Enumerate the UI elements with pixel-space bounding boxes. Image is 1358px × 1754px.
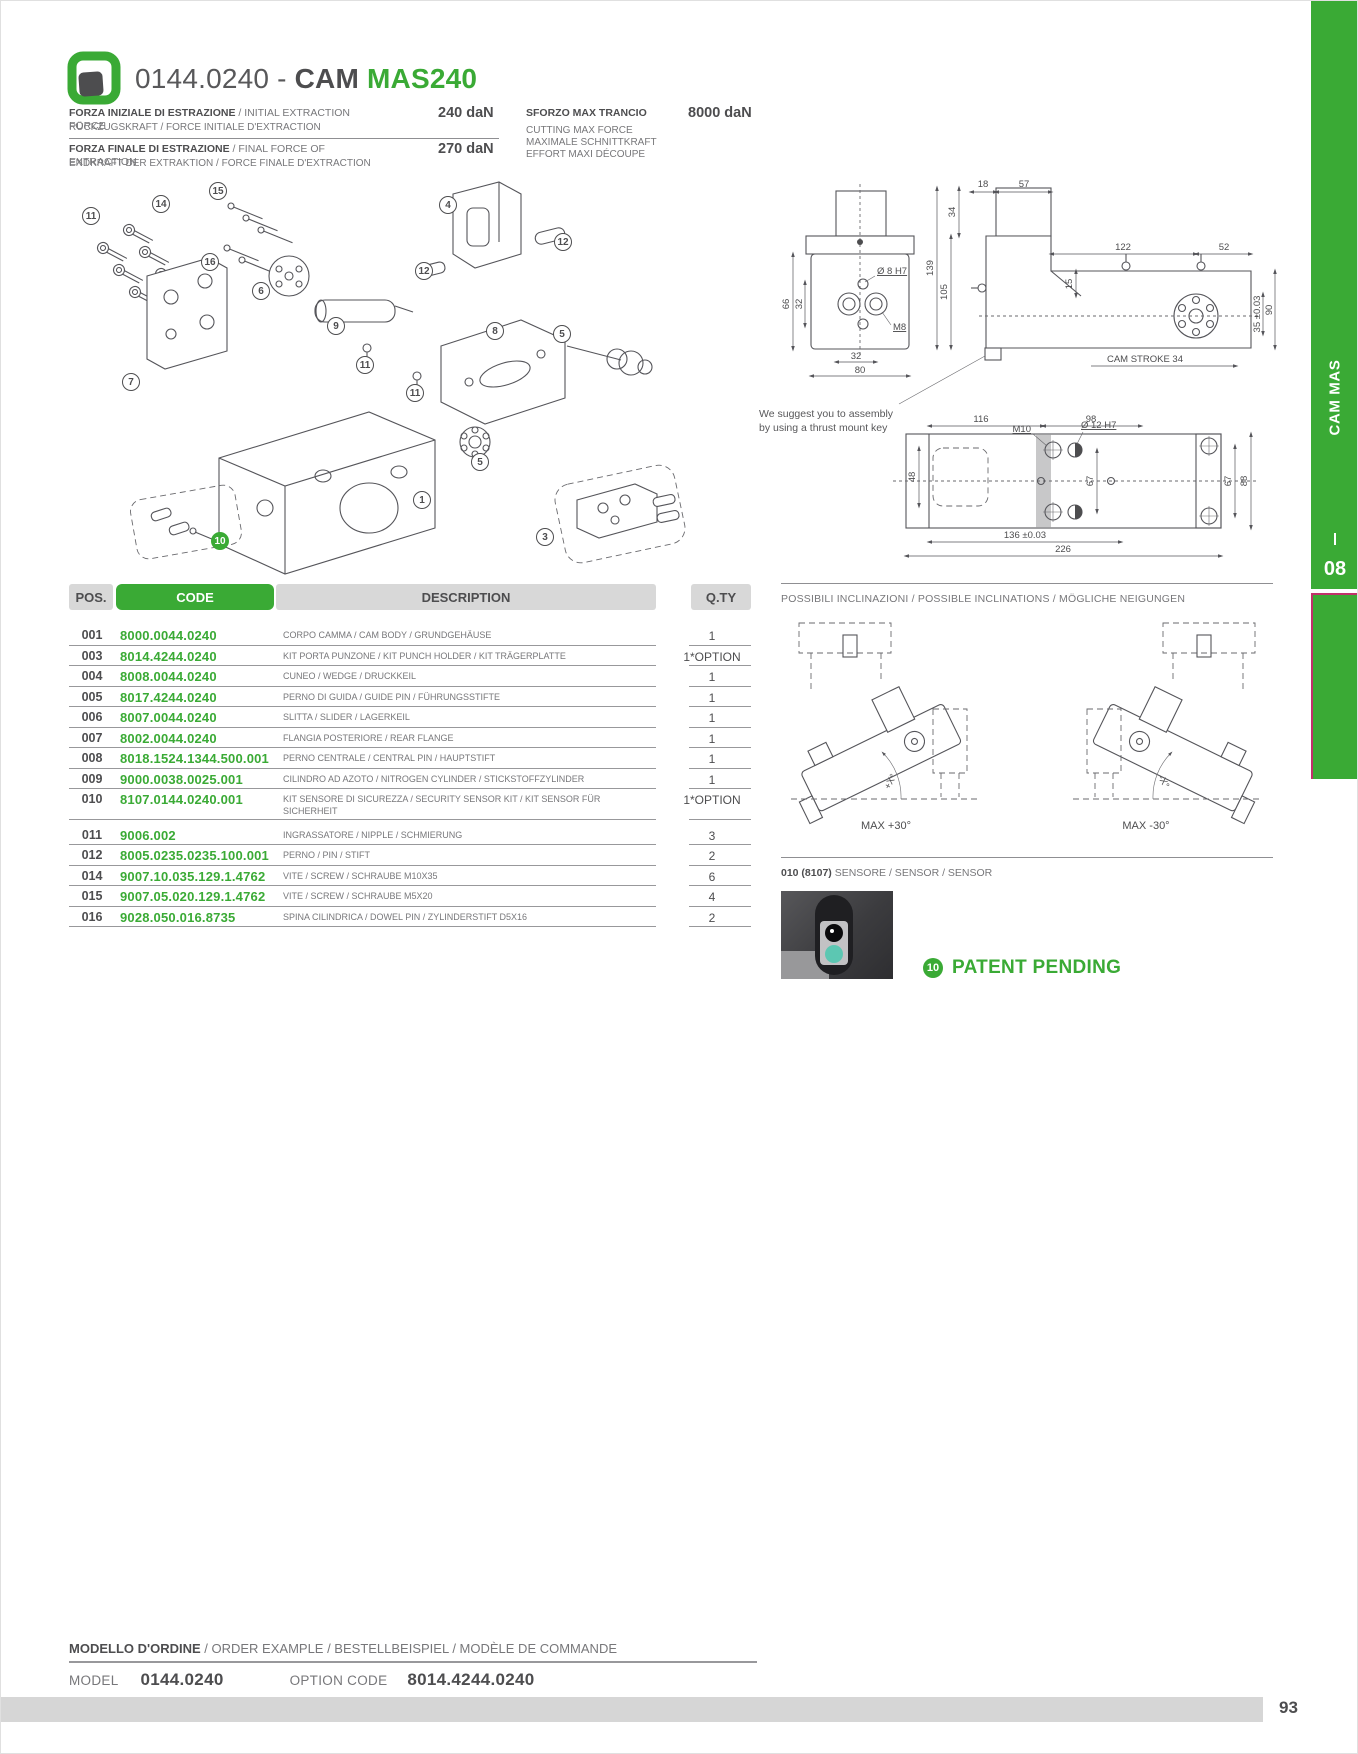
balloon-1: 1 (413, 491, 431, 509)
cell-code: 9007.10.035.129.1.4762 (115, 869, 283, 884)
spec-max-cut-value: 8000 daN (688, 105, 752, 121)
parts-table-body: 001 8000.0044.0240 CORPO CAMMA / CAM BOD… (69, 625, 751, 927)
cell-description: PERNO CENTRALE / CENTRAL PIN / HAUPTSTIF… (283, 751, 673, 766)
balloon-16: 16 (201, 253, 219, 271)
spec-max-cut-fr: EFFORT MAXI DÉCOUPE (526, 149, 645, 160)
exploded-balloons: 111415166412129851111751310 (69, 176, 691, 576)
svg-text:226: 226 (1055, 544, 1071, 555)
cell-pos: 004 (69, 669, 115, 684)
header-description: DESCRIPTION (276, 584, 656, 610)
cell-pos: 015 (69, 889, 115, 904)
cell-qty: 1 (673, 669, 751, 684)
cell-code: 8000.0044.0240 (115, 628, 283, 643)
svg-text:105: 105 (939, 284, 950, 300)
chapter-tab-label: CAM MAS (1327, 359, 1344, 435)
balloon-4: 4 (439, 196, 457, 214)
order-example-title: MODELLO D'ORDINE / ORDER EXAMPLE / BESTE… (69, 1641, 617, 1656)
cell-code: 8008.0044.0240 (115, 669, 283, 684)
cell-qty: 1 (673, 690, 751, 705)
balloon-7: 7 (122, 373, 140, 391)
cell-code: 9000.0038.0025.001 (115, 772, 283, 787)
table-row: 012 8005.0235.0235.100.001 PERNO / PIN /… (69, 845, 751, 866)
cell-description: KIT PORTA PUNZONE / KIT PUNCH HOLDER / K… (283, 649, 673, 664)
balloon-11: 11 (356, 356, 374, 374)
cell-pos: 011 (69, 828, 115, 843)
svg-text:32: 32 (794, 299, 805, 310)
balloon-15: 15 (209, 182, 227, 200)
cell-description: SLITTA / SLIDER / LAGERKEIL (283, 710, 673, 725)
model-label: MODEL (69, 1673, 119, 1688)
tab-separator (1334, 533, 1336, 545)
photo-sensor-lens (825, 924, 843, 942)
cell-pos: 008 (69, 751, 115, 766)
svg-text:80: 80 (855, 365, 866, 376)
cell-qty: 6 (673, 869, 751, 884)
cell-pos: 016 (69, 910, 115, 925)
order-example-line: MODEL 0144.0240 OPTION CODE 8014.4244.02… (69, 1670, 535, 1690)
chapter-tab: CAM MAS 08 (1311, 1, 1358, 589)
divider (781, 583, 1273, 584)
cell-pos: 010 (69, 792, 115, 817)
cell-code: 8017.4244.0240 (115, 690, 283, 705)
cell-pos: 006 (69, 710, 115, 725)
cell-description: SPINA CILINDRICA / DOWEL PIN / ZYLINDERS… (283, 910, 673, 925)
footer-bar (1, 1697, 1263, 1722)
cell-description: PERNO DI GUIDA / GUIDE PIN / FÜHRUNGSSTI… (283, 690, 673, 705)
svg-text:66: 66 (781, 299, 792, 310)
parts-table: POS. CODE DESCRIPTION Q.TY 001 8000.0044… (69, 584, 751, 927)
svg-text:M10: M10 (1013, 424, 1031, 435)
svg-text:136 ±0.03: 136 ±0.03 (1004, 530, 1046, 541)
header-qty: Q.TY (691, 584, 751, 610)
svg-text:88: 88 (1239, 476, 1250, 487)
header-pos: POS. (69, 584, 113, 610)
svg-text:67: 67 (1223, 476, 1234, 487)
patent-pending: 10 PATENT PENDING (923, 957, 1121, 979)
cell-description: FLANGIA POSTERIORE / REAR FLANGE (283, 731, 673, 746)
balloon-6: 6 (252, 282, 270, 300)
table-row: 008 8018.1524.1344.500.001 PERNO CENTRAL… (69, 748, 751, 769)
sensor-photo (781, 891, 893, 979)
balloon-5: 5 (471, 453, 489, 471)
spec-max-cut-title: SFORZO MAX TRANCIO (526, 107, 647, 120)
spec-final-force-value: 270 daN (438, 141, 494, 157)
cell-qty: 1 (673, 751, 751, 766)
svg-text:Ø 12 H7: Ø 12 H7 (1081, 420, 1116, 431)
spec-initial-force-value: 240 daN (438, 105, 494, 121)
cell-code: 8007.0044.0240 (115, 710, 283, 725)
brand-logo-icon (67, 51, 123, 107)
svg-text:122: 122 (1115, 242, 1131, 253)
divider (781, 857, 1273, 858)
svg-text:35 ±0.03: 35 ±0.03 (1252, 296, 1263, 333)
model-name: MAS240 (367, 63, 477, 94)
svg-text:15: 15 (1064, 279, 1075, 290)
balloon-10-badge: 10 (923, 958, 943, 978)
cell-description: CORPO CAMMA / CAM BODY / GRUNDGEHÄUSE (283, 628, 673, 643)
balloon-12: 12 (554, 233, 572, 251)
table-row: 011 9006.002 INGRASSATORE / NIPPLE / SCH… (69, 825, 751, 846)
chapter-number: 08 (1311, 558, 1358, 581)
cell-description: VITE / SCREW / SCHRAUBE M10X35 (283, 869, 673, 884)
balloon-5: 5 (553, 325, 571, 343)
balloon-11: 11 (82, 207, 100, 225)
table-row: 009 9000.0038.0025.001 CILINDRO AD AZOTO… (69, 769, 751, 790)
catalog-page: 0144.0240 - CAM MAS240 FORZA INIZIALE DI… (0, 0, 1358, 1754)
spec-max-cut-de: MAXIMALE SCHNITTKRAFT (526, 137, 657, 148)
cell-description: CILINDRO AD AZOTO / NITROGEN CYLINDER / … (283, 772, 673, 787)
left-caption: MAX +30° (861, 820, 911, 832)
svg-text:32: 32 (851, 351, 862, 362)
balloon-11: 11 (406, 384, 424, 402)
cell-description: VITE / SCREW / SCHRAUBE M5X20 (283, 889, 673, 904)
cell-qty: 1 (673, 628, 751, 643)
photo-sensor-button (825, 945, 843, 963)
svg-text:116: 116 (973, 414, 988, 425)
spec-divider (69, 138, 499, 139)
cell-code: 8014.4244.0240 (115, 649, 283, 664)
cell-pos: 003 (69, 649, 115, 664)
option-code-label: OPTION CODE (290, 1673, 388, 1688)
table-row: 015 9007.05.020.129.1.4762 VITE / SCREW … (69, 886, 751, 907)
spec-max-cut-en: CUTTING MAX FORCE (526, 125, 633, 136)
cell-code: 9028.050.016.8735 (115, 910, 283, 925)
cell-qty: 1 (673, 772, 751, 787)
cell-pos: 001 (69, 628, 115, 643)
cell-code: 8002.0044.0240 (115, 731, 283, 746)
svg-text:52: 52 (1219, 242, 1230, 253)
cell-description: KIT SENSORE DI SICUREZZA / SECURITY SENS… (283, 792, 673, 817)
option-code-value: 8014.4244.0240 (407, 1670, 534, 1690)
svg-text:139: 139 (925, 260, 936, 276)
balloon-9: 9 (327, 317, 345, 335)
header-code: CODE (116, 584, 274, 610)
balloon-3: 3 (536, 528, 554, 546)
page-title: 0144.0240 - CAM MAS240 (135, 63, 477, 95)
patent-pending-text: PATENT PENDING (952, 957, 1121, 979)
table-row: 004 8008.0044.0240 CUNEO / WEDGE / DRUCK… (69, 666, 751, 687)
cell-qty: 3 (673, 828, 751, 843)
svg-text:57: 57 (1019, 179, 1030, 190)
cell-code: 9007.05.020.129.1.4762 (115, 889, 283, 904)
cell-qty: 1 (673, 731, 751, 746)
sensor-label: 010 (8107) SENSORE / SENSOR / SENSOR (781, 867, 992, 879)
parts-table-header: POS. CODE DESCRIPTION Q.TY (69, 584, 751, 610)
cell-pos: 009 (69, 772, 115, 787)
table-row: 007 8002.0044.0240 FLANGIA POSTERIORE / … (69, 728, 751, 749)
balloon-8: 8 (486, 322, 504, 340)
table-row: 003 8014.4244.0240 KIT PORTA PUNZONE / K… (69, 646, 751, 667)
product-code: 0144.0240 - (135, 63, 295, 94)
inclinations-title: POSSIBILI INCLINAZIONI / POSSIBLE INCLIN… (781, 593, 1185, 605)
cell-pos: 007 (69, 731, 115, 746)
dimension-drawing: 66 32 Ø 8 H7 M8 32 80 CAM STROKE 34 18 5… (781, 176, 1281, 568)
cell-qty: 1*OPTION (673, 649, 751, 664)
cell-description: CUNEO / WEDGE / DRUCKKEIL (283, 669, 673, 684)
cell-qty: 1*OPTION (673, 792, 751, 817)
cell-qty: 2 (673, 910, 751, 925)
cell-code: 8018.1524.1344.500.001 (115, 751, 283, 766)
exploded-view: 111415166412129851111751310 (69, 176, 691, 576)
svg-text:90: 90 (1264, 305, 1275, 316)
cell-code: 8005.0235.0235.100.001 (115, 848, 283, 863)
svg-text:67: 67 (1085, 476, 1096, 487)
cell-description: INGRASSATORE / NIPPLE / SCHMIERUNG (283, 828, 673, 843)
next-chapter-tab (1311, 593, 1358, 779)
cell-pos: 014 (69, 869, 115, 884)
svg-text:M8: M8 (893, 322, 906, 333)
cell-description: PERNO / PIN / STIFT (283, 848, 673, 863)
balloon-10: 10 (211, 532, 229, 550)
cell-qty: 4 (673, 889, 751, 904)
table-row: 005 8017.4244.0240 PERNO DI GUIDA / GUID… (69, 687, 751, 708)
balloon-12: 12 (415, 262, 433, 280)
spec-final-force-sub: ENDKRAFT DER EXTRAKTION / FORCE FINALE D… (69, 158, 371, 169)
model-value: 0144.0240 (141, 1670, 224, 1690)
cell-qty: 1 (673, 710, 751, 725)
table-row: 006 8007.0044.0240 SLITTA / SLIDER / LAG… (69, 707, 751, 728)
cell-qty: 2 (673, 848, 751, 863)
order-rule (69, 1661, 757, 1663)
cell-code: 9006.002 (115, 828, 283, 843)
svg-text:48: 48 (907, 472, 918, 483)
table-row: 016 9028.050.016.8735 SPINA CILINDRICA /… (69, 907, 751, 928)
svg-text:CAM STROKE 34: CAM STROKE 34 (1107, 354, 1183, 365)
table-row: 014 9007.10.035.129.1.4762 VITE / SCREW … (69, 866, 751, 887)
svg-text:18: 18 (978, 179, 989, 190)
cell-pos: 005 (69, 690, 115, 705)
table-row: 001 8000.0044.0240 CORPO CAMMA / CAM BOD… (69, 625, 751, 646)
cell-pos: 012 (69, 848, 115, 863)
cell-code: 8107.0144.0240.001 (115, 792, 283, 817)
right-caption: MAX -30° (1122, 820, 1169, 832)
inclinations-drawing: +X° MAX +30° -X° MAX -30° (781, 613, 1273, 853)
table-row: 010 8107.0144.0240.001 KIT SENSORE DI SI… (69, 789, 751, 820)
svg-text:Ø 8 H7: Ø 8 H7 (877, 266, 907, 277)
balloon-14: 14 (152, 195, 170, 213)
spec-initial-force-sub: RÜCKZUGSKRAFT / FORCE INITIALE D'EXTRACT… (69, 122, 321, 133)
svg-text:34: 34 (947, 207, 958, 218)
page-number: 93 (1279, 1698, 1298, 1718)
